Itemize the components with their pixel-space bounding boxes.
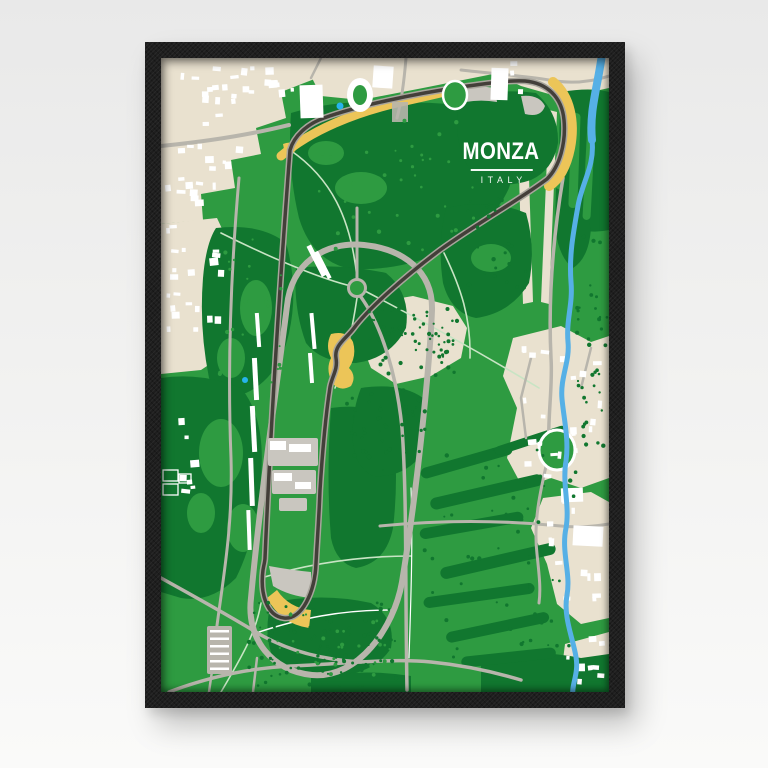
- building: [579, 371, 586, 378]
- tree-dot: [369, 338, 371, 340]
- tree-dot: [379, 659, 382, 662]
- tree-dot: [362, 427, 365, 430]
- tree-dot: [523, 286, 526, 289]
- tree-dot: [405, 452, 407, 454]
- tree-dot: [467, 209, 470, 212]
- tree-dot: [271, 631, 274, 634]
- monza-poster: MONZA ITALY: [161, 58, 609, 692]
- building: [212, 253, 221, 258]
- tree-dot: [452, 656, 455, 659]
- tree-dot: [527, 561, 530, 564]
- tree-dot: [606, 316, 609, 319]
- tree-dot: [371, 328, 374, 331]
- tree-dot: [589, 293, 593, 297]
- tree-dot: [550, 619, 553, 622]
- tree-dot: [585, 401, 588, 404]
- tree-dot: [508, 209, 510, 211]
- tree-dot: [587, 343, 591, 347]
- tree-dot: [524, 270, 527, 273]
- tree-dot: [555, 644, 559, 648]
- tree-dot: [363, 431, 366, 434]
- tree-dot: [387, 372, 391, 376]
- tree-dot: [411, 165, 414, 168]
- tree-dot: [434, 332, 437, 335]
- building: [594, 573, 601, 581]
- tree-dot: [225, 330, 229, 334]
- building: [213, 183, 216, 190]
- tree-dot: [270, 381, 272, 383]
- tree-dot: [494, 267, 497, 270]
- building: [510, 70, 514, 75]
- tree-dot: [384, 356, 388, 360]
- tree-dot: [419, 326, 421, 328]
- tree-dot: [469, 200, 471, 202]
- tree-dot: [354, 433, 357, 436]
- tree-dot: [415, 406, 417, 408]
- tree-dot: [456, 647, 459, 650]
- tree-dot: [447, 160, 450, 163]
- building: [510, 61, 517, 66]
- tree-dot: [400, 178, 403, 181]
- building: [198, 144, 202, 150]
- tree-dot: [396, 214, 399, 217]
- tree-dot: [305, 613, 307, 615]
- building: [178, 148, 185, 154]
- tree-dot: [370, 392, 374, 396]
- tree-dot: [377, 338, 381, 342]
- building: [541, 415, 546, 419]
- tree-dot: [364, 451, 367, 454]
- tree-dot: [344, 200, 347, 203]
- tree-dot: [423, 409, 427, 413]
- building: [180, 475, 187, 482]
- building: [529, 352, 536, 358]
- tree-dot: [373, 319, 375, 321]
- tree-dot: [364, 663, 367, 666]
- tree-dot: [279, 673, 282, 676]
- tree-dot: [237, 359, 240, 362]
- tree-dot: [326, 645, 329, 648]
- tree-dot: [337, 646, 340, 649]
- tree-dot: [368, 401, 371, 404]
- building: [547, 521, 553, 526]
- tree-dot: [441, 327, 443, 329]
- tree-dot: [260, 656, 264, 660]
- tree-dot: [379, 417, 382, 420]
- tree-dot: [381, 439, 384, 442]
- building: [190, 189, 198, 196]
- building: [557, 451, 561, 459]
- tree-dot: [252, 641, 256, 645]
- tree-dot: [600, 327, 603, 330]
- tree-dot: [507, 242, 510, 245]
- tree-dot: [414, 340, 417, 343]
- tree-dot: [582, 434, 586, 438]
- building: [193, 327, 198, 332]
- tree-dot: [447, 339, 451, 343]
- tree-dot: [258, 602, 260, 604]
- tree-dot: [226, 345, 228, 347]
- tree-dot: [487, 214, 491, 218]
- building: [550, 453, 558, 457]
- tree-dot: [598, 241, 602, 245]
- tree-dot: [594, 307, 597, 310]
- title-divider: [470, 169, 532, 171]
- building: [236, 146, 244, 153]
- building: [169, 225, 177, 229]
- tree-dot: [572, 494, 576, 498]
- tree-dot: [451, 320, 454, 323]
- tree-dot: [302, 614, 304, 616]
- tree-dot: [431, 591, 434, 594]
- tree-dot: [423, 428, 426, 431]
- tree-dot: [279, 367, 282, 370]
- tree-dot: [270, 675, 272, 677]
- building: [250, 66, 254, 70]
- building: [167, 326, 171, 332]
- building: [190, 486, 195, 490]
- building: [597, 673, 604, 678]
- tree-dot: [394, 676, 398, 680]
- tree-dot: [493, 274, 497, 278]
- tree-dot: [312, 608, 315, 611]
- tree-dot: [470, 628, 473, 631]
- tree-dot: [360, 668, 364, 672]
- tree-dot: [228, 261, 230, 263]
- building: [592, 665, 599, 670]
- tree-dot: [488, 203, 491, 206]
- building: [243, 86, 250, 92]
- tree-dot: [266, 601, 270, 605]
- building: [207, 87, 213, 92]
- tree-dot: [516, 530, 520, 534]
- tree-dot: [252, 329, 256, 333]
- building: [265, 67, 274, 75]
- tree-dot: [587, 337, 590, 340]
- tree-dot: [351, 397, 354, 400]
- tree-dot: [409, 427, 411, 429]
- tree-dot: [285, 671, 289, 675]
- tree-dot: [404, 411, 407, 414]
- tree-dot: [442, 356, 444, 358]
- tree-dot: [577, 318, 580, 321]
- tree-dot: [446, 307, 450, 311]
- tree-dot: [433, 323, 435, 325]
- tree-dot: [329, 155, 333, 159]
- building: [178, 418, 185, 425]
- building: [599, 641, 605, 646]
- tree-dot: [412, 314, 415, 317]
- building: [577, 679, 582, 685]
- tree-dot: [510, 245, 513, 248]
- tree-dot: [410, 145, 413, 148]
- building: [222, 84, 228, 91]
- tree-dot: [390, 308, 394, 312]
- building: [215, 316, 222, 324]
- tree-dot: [334, 247, 338, 251]
- tree-dot: [267, 611, 269, 613]
- tree-dot: [267, 634, 270, 637]
- tree-dot: [411, 332, 415, 336]
- tree-dot: [540, 621, 544, 625]
- tree-dot: [328, 649, 331, 652]
- poster-title-block: MONZA ITALY: [456, 140, 546, 185]
- tree-dot: [340, 671, 342, 673]
- tree-dot: [521, 519, 524, 522]
- tree-dot: [264, 681, 267, 684]
- tree-dot: [231, 328, 234, 331]
- tree-dot: [389, 648, 391, 650]
- tree-dot: [257, 684, 260, 687]
- tree-dot: [277, 368, 279, 370]
- tree-dot: [471, 186, 473, 188]
- building: [574, 448, 578, 453]
- tree-dot: [477, 556, 481, 560]
- building: [549, 538, 555, 546]
- tree-dot: [277, 640, 279, 642]
- building: [587, 573, 590, 581]
- tree-dot: [505, 513, 508, 516]
- tree-dot: [475, 627, 477, 629]
- tree-dot: [366, 612, 370, 616]
- picture-frame: MONZA ITALY: [145, 42, 625, 708]
- tree-dot: [387, 331, 391, 335]
- tree-dot: [604, 343, 608, 347]
- building: [170, 305, 175, 312]
- tree-dot: [419, 365, 423, 369]
- tree-dot: [529, 586, 533, 590]
- tree-dot: [434, 373, 438, 377]
- tree-dot: [567, 644, 570, 647]
- tree-dot: [450, 230, 453, 233]
- tree-dot: [429, 338, 431, 340]
- tree-dot: [431, 334, 434, 337]
- tree-dot: [343, 653, 347, 657]
- tree-dot: [247, 640, 251, 644]
- tree-dot: [362, 633, 366, 637]
- tree-dot: [325, 618, 328, 621]
- tree-dot: [401, 334, 403, 336]
- tree-dot: [568, 478, 572, 482]
- building: [225, 161, 232, 169]
- building: [589, 636, 597, 642]
- tree-dot: [280, 274, 282, 276]
- tree-dot: [466, 555, 470, 559]
- building: [187, 479, 193, 484]
- tree-dot: [377, 230, 381, 234]
- building: [178, 177, 184, 181]
- building: [588, 665, 593, 670]
- tree-dot: [599, 316, 601, 318]
- tree-dot: [585, 421, 589, 425]
- tree-dot: [384, 644, 387, 647]
- tree-dot: [591, 239, 595, 243]
- tree-dot: [596, 441, 599, 444]
- tree-dot: [401, 435, 404, 438]
- tree-dot: [378, 643, 382, 647]
- tree-dot: [418, 450, 421, 453]
- tree-dot: [293, 630, 297, 634]
- tree-dot: [422, 322, 425, 325]
- building: [291, 88, 295, 92]
- tree-dot: [353, 453, 357, 457]
- building: [491, 84, 497, 89]
- tree-dot: [443, 516, 445, 518]
- tree-dot: [242, 333, 244, 335]
- tree-dot: [357, 644, 360, 647]
- tree-dot: [368, 211, 371, 214]
- tree-dot: [329, 672, 333, 676]
- tree-dot: [339, 616, 343, 620]
- tree-dot: [381, 359, 384, 362]
- tree-dot: [402, 313, 406, 317]
- tree-dot: [598, 391, 600, 393]
- tree-dot: [425, 311, 428, 314]
- tree-dot: [218, 372, 222, 376]
- tree-dot: [504, 251, 507, 254]
- building: [202, 95, 209, 103]
- tree-dot: [427, 332, 431, 336]
- building: [166, 228, 170, 234]
- tree-dot: [361, 684, 364, 687]
- tree-dot: [421, 248, 424, 251]
- tree-dot: [406, 414, 409, 417]
- building: [523, 398, 527, 404]
- tree-dot: [444, 350, 448, 354]
- tree-dot: [452, 343, 455, 346]
- wall: MONZA ITALY: [0, 0, 768, 768]
- tree-dot: [500, 198, 504, 202]
- tree-dot: [367, 455, 371, 459]
- building: [182, 248, 186, 252]
- tree-dot: [273, 625, 276, 628]
- building: [528, 439, 537, 446]
- tree-dot: [378, 408, 382, 412]
- tree-dot: [552, 579, 554, 581]
- tree-dot: [511, 496, 515, 500]
- tree-dot: [444, 205, 446, 207]
- tree-dot: [319, 645, 322, 648]
- tree-dot: [533, 612, 537, 616]
- building: [592, 597, 596, 601]
- building: [572, 508, 575, 514]
- tree-dot: [429, 158, 432, 161]
- building: [581, 570, 588, 577]
- tree-dot: [440, 348, 443, 351]
- tree-dot: [407, 241, 411, 245]
- tree-dot: [543, 485, 545, 487]
- building: [231, 98, 236, 104]
- tree-dot: [575, 306, 579, 310]
- tree-dot: [444, 618, 448, 622]
- tree-dot: [292, 640, 295, 643]
- building: [205, 156, 214, 163]
- tree-dot: [348, 626, 351, 629]
- tree-dot: [379, 406, 381, 408]
- poster-subtitle: ITALY: [456, 175, 546, 185]
- tree-dot: [273, 662, 276, 665]
- tree-dot: [508, 627, 512, 631]
- tree-dot: [233, 259, 235, 261]
- tree-dot: [437, 132, 441, 136]
- tree-dot: [391, 327, 393, 329]
- building: [209, 166, 216, 171]
- tree-dot: [378, 430, 380, 432]
- tree-dot: [505, 603, 508, 606]
- building: [166, 293, 170, 297]
- tree-dot: [537, 520, 541, 524]
- tree-dot: [361, 449, 365, 453]
- tree-dot: [383, 173, 387, 177]
- tree-dot: [590, 373, 594, 377]
- tree-dot: [388, 448, 392, 452]
- tree-dot: [327, 673, 329, 675]
- building: [522, 349, 526, 354]
- building: [209, 257, 219, 266]
- tree-dot: [336, 231, 340, 235]
- building: [192, 76, 200, 79]
- tree-dot: [438, 343, 440, 345]
- building: [593, 361, 602, 365]
- building: [170, 274, 178, 280]
- tree-dot: [547, 644, 549, 646]
- tree-dot: [403, 119, 407, 123]
- tree-dot: [352, 215, 356, 219]
- tree-dot: [595, 295, 598, 298]
- tree-dot: [470, 556, 474, 560]
- tree-dot: [412, 414, 415, 417]
- tree-dot: [314, 635, 317, 638]
- building: [524, 461, 531, 467]
- tree-dot: [319, 681, 322, 684]
- tree-dot: [411, 410, 414, 413]
- building: [177, 190, 186, 194]
- tree-dot: [395, 150, 397, 152]
- tree-dot: [367, 643, 370, 646]
- building: [191, 195, 199, 201]
- tree-dot: [365, 151, 368, 154]
- tree-dot: [372, 673, 376, 677]
- tree-dot: [321, 636, 325, 640]
- tree-dot: [318, 190, 321, 193]
- tree-dot: [496, 601, 498, 603]
- building: [231, 94, 237, 99]
- tree-dot: [379, 609, 383, 613]
- tree-dot: [494, 209, 497, 212]
- tree-dot: [308, 682, 312, 686]
- tree-dot: [351, 662, 354, 665]
- map-roundabout: [349, 280, 366, 297]
- tree-dot: [445, 453, 449, 457]
- tree-dot: [356, 683, 359, 686]
- tree-dot: [371, 319, 373, 321]
- tree-dot: [484, 466, 488, 470]
- building: [195, 306, 200, 312]
- tree-dot: [376, 316, 380, 320]
- tree-dot: [387, 344, 390, 347]
- tree-dot: [472, 217, 475, 220]
- building: [212, 85, 219, 91]
- tree-dot: [259, 627, 261, 629]
- building: [566, 656, 570, 660]
- tree-dot: [382, 662, 386, 666]
- tree-dot: [440, 361, 443, 364]
- tree-dot: [528, 555, 532, 559]
- tree-dot: [399, 361, 403, 365]
- tree-dot: [316, 654, 319, 657]
- tree-dot: [252, 238, 254, 240]
- tree-dot: [437, 355, 441, 359]
